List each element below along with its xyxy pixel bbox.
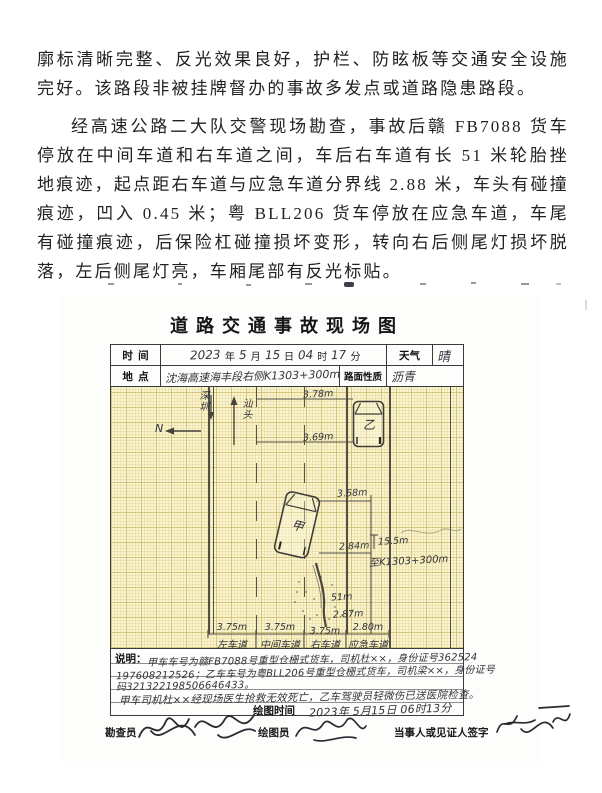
draw-time-label: 绘图时间 xyxy=(253,703,295,718)
measure-155: 15.5m xyxy=(378,535,409,548)
weather-value: 晴 xyxy=(433,345,463,365)
measure-378: 3.78m xyxy=(303,388,334,401)
scan-artifact xyxy=(471,282,476,284)
compass-n-label: N xyxy=(155,422,163,435)
party-signature-scribble xyxy=(491,702,573,744)
scan-artifact xyxy=(556,283,561,285)
scan-artifact xyxy=(305,283,312,285)
measure-skid-51: 51m xyxy=(331,591,353,603)
unit-month: 月 xyxy=(251,348,261,363)
paragraph-safety-facilities: 廓标清晰完整、反光效果良好，护栏、防眩板等交通安全设施完好。该路段非被挂牌督办的… xyxy=(37,45,569,103)
measure-287: 2.87m xyxy=(333,608,364,621)
vehicle-b: 乙 xyxy=(351,399,387,449)
header-row-location: 地 点 沈海高速海丰段右侧K1303+300m 路面性质 沥青 xyxy=(111,366,463,387)
accident-form: 时 间 2023 年 5 月 15 日 04 时 17 分 天气 晴 地 点 xyxy=(110,344,464,716)
direction-down-label: 深圳 xyxy=(195,390,210,412)
form-title: 道路交通事故现场图 xyxy=(110,312,464,338)
location-label: 地 点 xyxy=(111,366,161,386)
surveyor-label: 勘查员 xyxy=(105,725,137,740)
scan-artifact xyxy=(420,283,426,285)
time-label: 时 间 xyxy=(111,345,161,365)
drafter-signature-scribble xyxy=(292,710,370,746)
time-month: 5 xyxy=(239,348,247,362)
scan-artifact xyxy=(246,284,251,286)
surveyor-signature-scribble xyxy=(133,705,258,749)
lane-width-2: 3.75m xyxy=(260,622,300,633)
measure-284: 2.84m xyxy=(339,540,370,553)
unit-day: 日 xyxy=(284,348,294,363)
weather-label: 天气 xyxy=(387,345,433,365)
scan-artifact xyxy=(178,283,182,285)
time-hour: 04 xyxy=(298,348,314,363)
scan-artifact xyxy=(344,282,354,287)
lane-width-4: 2.80m xyxy=(348,622,388,633)
time-value: 2023 年 5 月 15 日 04 时 17 分 xyxy=(161,345,387,365)
lane-line-dashed-1 xyxy=(256,387,257,634)
pencil-squiggle xyxy=(401,529,461,533)
lane-width-1: 3.75m xyxy=(212,622,252,633)
scan-artifact xyxy=(585,300,587,310)
scan-artifact xyxy=(108,283,114,285)
stake-note: 至K1303+300m xyxy=(369,550,449,569)
direction-up-label: 汕头 xyxy=(238,398,253,420)
drafter-label: 绘图员 xyxy=(258,725,290,740)
measure-369: 3.69m xyxy=(303,431,334,444)
surface-value: 沥青 xyxy=(387,366,463,386)
compass-arrow xyxy=(165,428,201,435)
road-edge-left-inner xyxy=(213,387,214,634)
time-year: 2023 xyxy=(190,347,221,362)
travel-direction-arrow xyxy=(231,396,238,445)
explanation-label: 说明： xyxy=(115,651,147,666)
location-value: 沈海高速海丰段右侧K1303+300m xyxy=(161,366,339,386)
unit-minute: 分 xyxy=(351,348,361,363)
unit-hour: 时 xyxy=(317,348,327,363)
header-row-time: 时 间 2023 年 5 月 15 日 04 时 17 分 天气 晴 xyxy=(111,345,463,366)
unit-year: 年 xyxy=(225,348,235,363)
time-day: 15 xyxy=(264,348,280,363)
vehicle-a-label: 甲 xyxy=(270,487,326,563)
vehicle-b-label: 乙 xyxy=(351,399,387,449)
time-minute: 17 xyxy=(331,348,347,363)
road-edge-left xyxy=(208,387,210,634)
scan-artifact xyxy=(521,283,529,285)
roadside-boundary xyxy=(450,387,451,649)
surface-label: 路面性质 xyxy=(339,366,387,386)
measure-358: 3.58m xyxy=(337,487,368,500)
report-page: 廓标清晰完整、反光效果良好，护栏、防眩板等交通安全设施完好。该路段非被挂牌督办的… xyxy=(0,0,602,793)
paragraph-scene-survey: 经高速公路二大队交警现场勘查，事故后赣 FB7088 货车停放在中间车道和右车道… xyxy=(37,112,569,286)
party-signature-label: 当事人或见证人签字 xyxy=(394,725,489,740)
road-edge-right xyxy=(389,387,391,649)
vehicle-a: 甲 xyxy=(270,487,326,563)
scene-diagram-grid: 乙 甲 深圳 N 汕头 3.78m 3.69m 3.58m 2.84m 15.5… xyxy=(111,387,463,649)
